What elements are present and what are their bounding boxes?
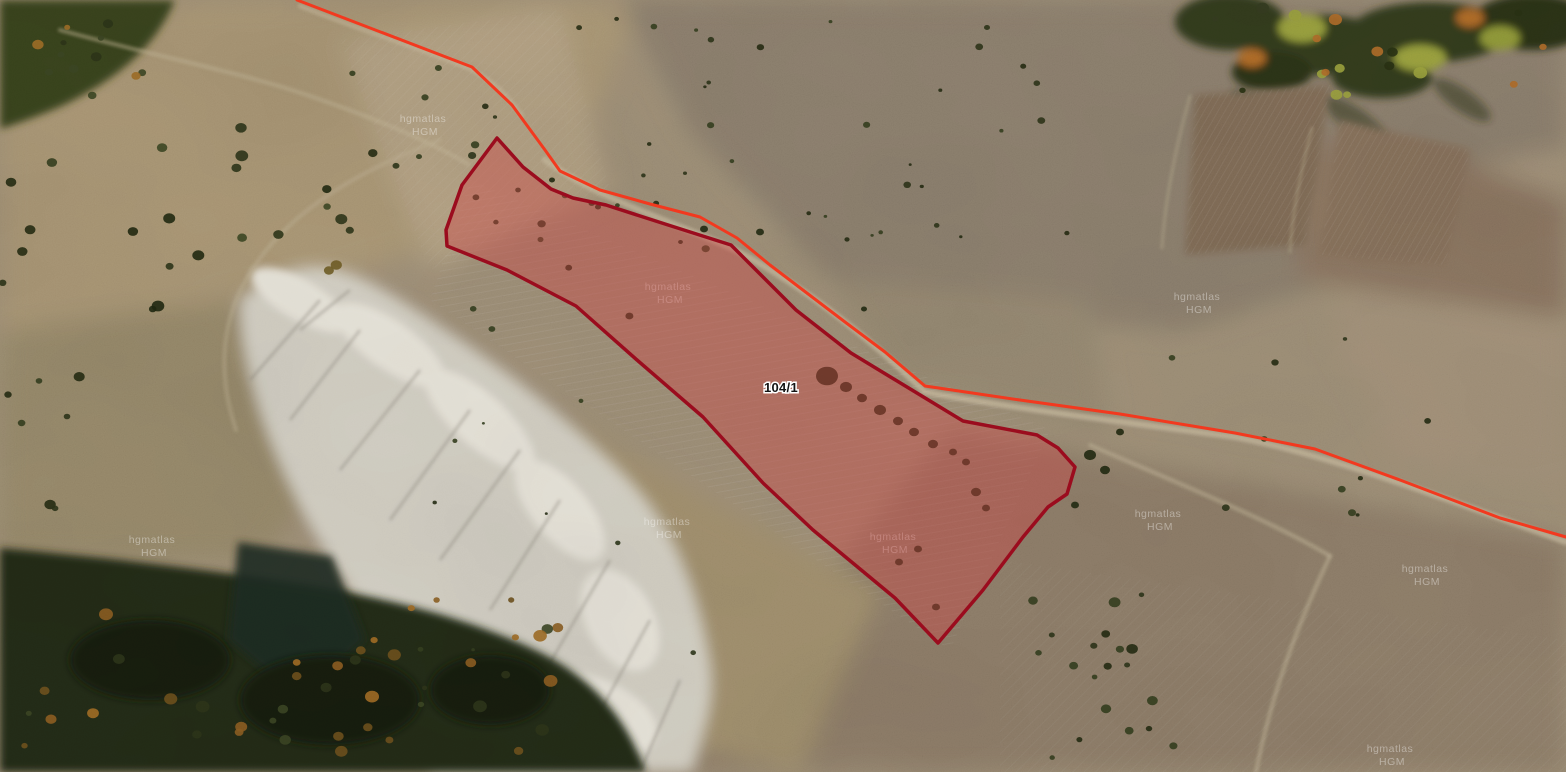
parcel-label: 104/1 [764,380,798,395]
svg-text:hgmatlas: hgmatlas [1174,291,1221,303]
svg-text:HGM: HGM [656,529,682,541]
svg-text:HGM: HGM [1379,756,1405,768]
svg-text:HGM: HGM [1186,304,1212,316]
svg-text:hgmatlas: hgmatlas [400,113,447,125]
svg-text:HGM: HGM [1414,576,1440,588]
svg-text:HGM: HGM [141,547,167,559]
svg-text:hgmatlas: hgmatlas [1402,563,1449,575]
svg-text:hgmatlas: hgmatlas [129,534,176,546]
map-canvas[interactable]: hgmatlasHGMhgmatlasHGMhgmatlasHGMhgmatla… [0,0,1566,772]
svg-text:hgmatlas: hgmatlas [1367,743,1414,755]
map-svg: hgmatlasHGMhgmatlasHGMhgmatlasHGMhgmatla… [0,0,1566,772]
svg-text:hgmatlas: hgmatlas [644,516,691,528]
svg-text:HGM: HGM [1147,521,1173,533]
svg-text:hgmatlas: hgmatlas [1135,508,1182,520]
svg-text:HGM: HGM [412,126,438,138]
